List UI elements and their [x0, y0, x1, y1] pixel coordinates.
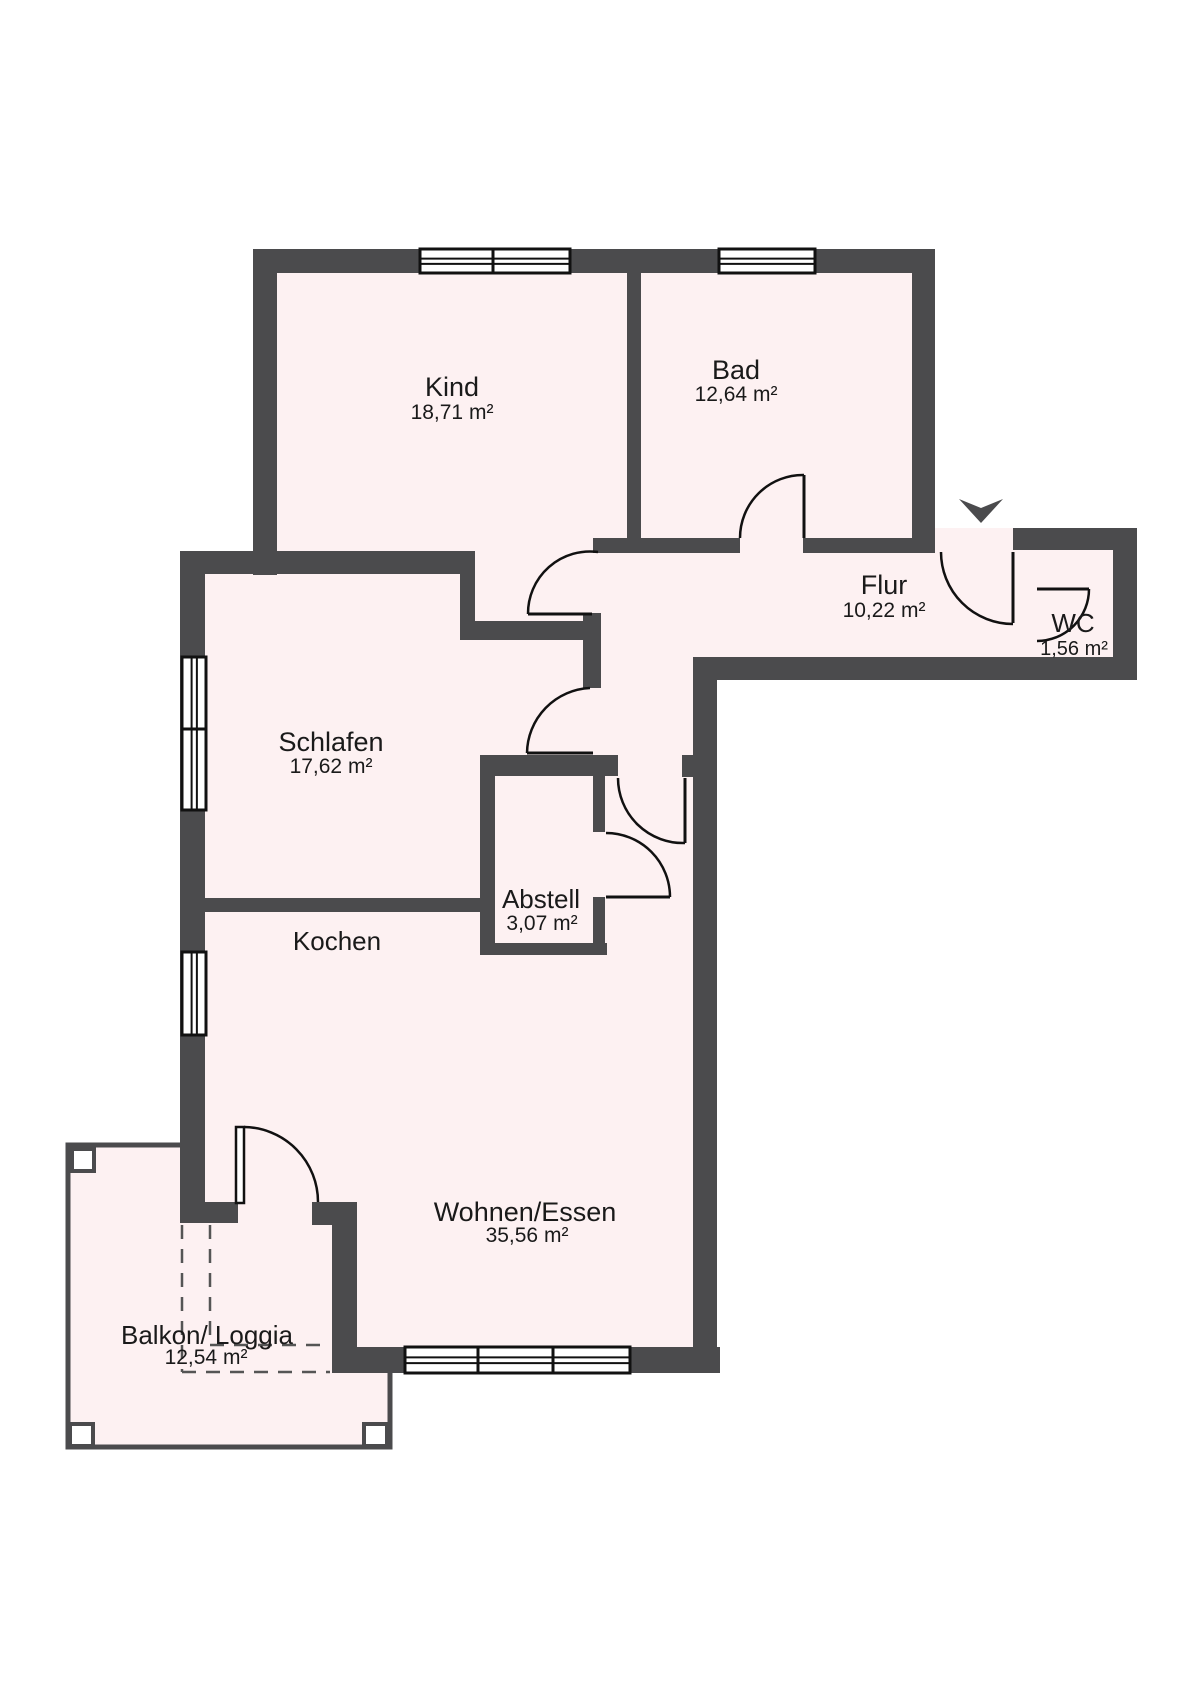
wall-segment — [803, 538, 935, 553]
window-icon — [493, 249, 570, 273]
balcony-post — [72, 1149, 94, 1171]
room-area-flur: 10,22 m² — [843, 599, 926, 622]
window-icon — [182, 729, 206, 810]
window-icon — [182, 952, 206, 1035]
window-icon — [478, 1347, 553, 1373]
room-area-balkon: 12,54 m² — [165, 1346, 248, 1369]
wall-segment — [693, 657, 1137, 680]
wall-segment — [912, 249, 935, 553]
window-icon — [719, 249, 815, 273]
wall-segment — [593, 897, 605, 955]
wall-segment — [180, 551, 205, 1202]
wall-segment — [1113, 528, 1137, 680]
room-floor — [180, 898, 717, 1373]
room-label-kind: Kind — [425, 372, 479, 402]
room-label-bad: Bad — [712, 355, 760, 385]
room-label-wohnen: Wohnen/Essen — [434, 1197, 617, 1227]
room-label-wc: WC — [1051, 608, 1094, 638]
room-area-bad: 12,64 m² — [695, 383, 778, 406]
wall-segment — [593, 776, 605, 832]
room-floor — [253, 249, 935, 575]
window-icon — [553, 1347, 630, 1373]
wall-segment — [693, 657, 717, 1373]
wall-segment — [253, 249, 935, 273]
room-area-wc: 1,56 m² — [1040, 638, 1108, 660]
floor-plan: Kind18,71 m²Bad12,64 m²Flur10,22 m²WC1,5… — [0, 0, 1191, 1684]
wall-segment — [593, 538, 740, 553]
wall-segment — [682, 755, 693, 777]
wall-segment — [1013, 528, 1137, 550]
room-label-kochen: Kochen — [293, 926, 381, 956]
wall-segment — [180, 551, 473, 574]
wall-segment — [627, 270, 641, 538]
wall-segment — [480, 755, 618, 776]
room-area-wohnen: 35,56 m² — [486, 1224, 569, 1247]
wall-segment — [460, 621, 601, 640]
room-label-schlafen: Schlafen — [278, 727, 383, 757]
room-area-abstell: 3,07 m² — [506, 912, 577, 935]
room-label-flur: Flur — [861, 570, 908, 600]
wall-segment — [312, 1202, 357, 1225]
wall-segment — [583, 613, 601, 688]
room-label-abstell: Abstell — [502, 884, 580, 914]
wall-segment — [480, 943, 607, 955]
window-icon — [182, 657, 206, 729]
room-area-kind: 18,71 m² — [411, 401, 494, 424]
wall-segment — [180, 1202, 238, 1223]
floor-plan-canvas: Kind18,71 m²Bad12,64 m²Flur10,22 m²WC1,5… — [0, 0, 1191, 1684]
balcony-post — [364, 1424, 387, 1446]
room-area-schlafen: 17,62 m² — [290, 755, 373, 778]
balcony-post — [70, 1424, 93, 1446]
wall-segment — [480, 755, 495, 955]
wall-segment — [205, 898, 480, 912]
window-icon — [420, 249, 493, 273]
wall-segment — [253, 249, 277, 575]
balcony-door-leaf — [236, 1127, 244, 1203]
wall-segment — [332, 1223, 357, 1373]
window-icon — [405, 1347, 478, 1373]
